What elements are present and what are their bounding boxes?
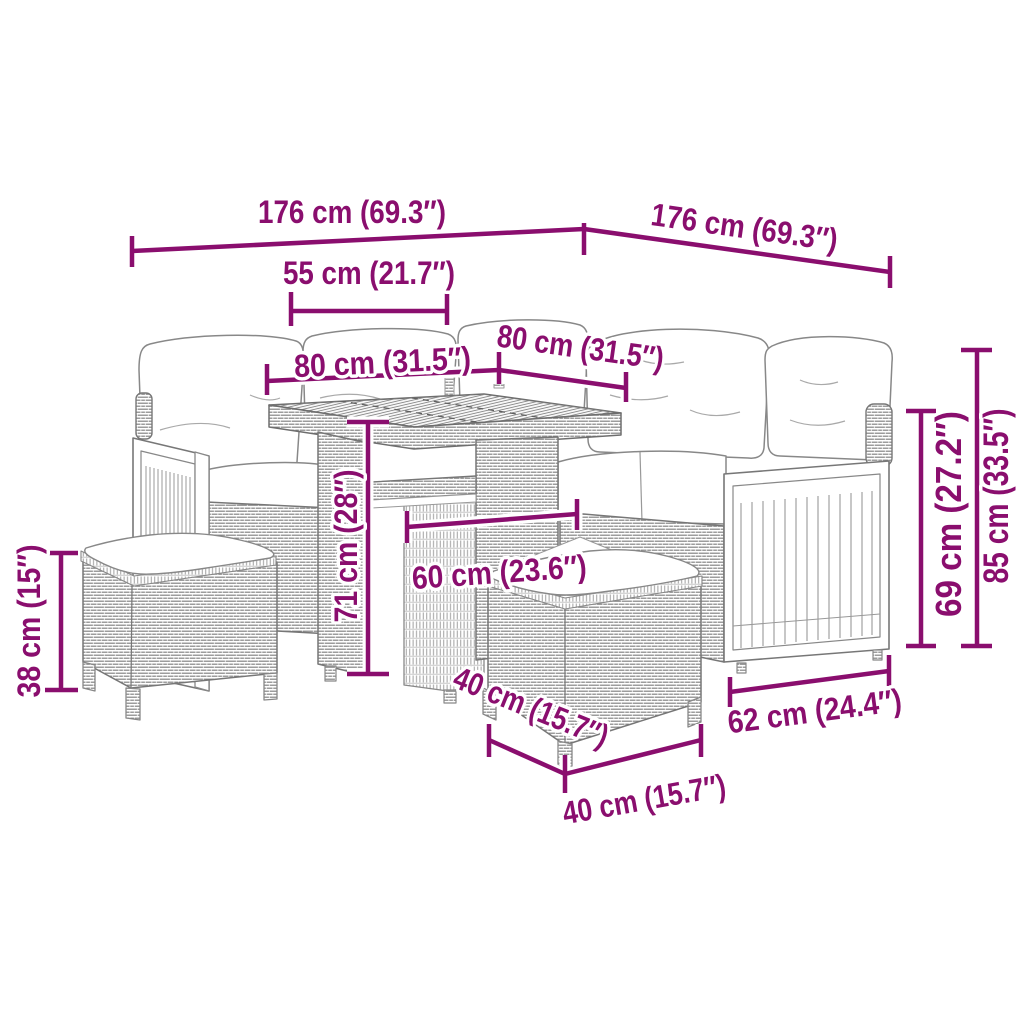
svg-text:176 cm (69.3″): 176 cm (69.3″) bbox=[258, 194, 446, 230]
svg-text:71 cm (28″): 71 cm (28″) bbox=[328, 470, 364, 623]
svg-text:55 cm (21.7″): 55 cm (21.7″) bbox=[283, 255, 455, 291]
svg-text:40 cm (15.7″): 40 cm (15.7″) bbox=[560, 767, 729, 831]
svg-text:85 cm (33.5″): 85 cm (33.5″) bbox=[977, 409, 1016, 584]
svg-text:38 cm (15″): 38 cm (15″) bbox=[11, 545, 47, 698]
svg-text:69 cm (27.2″): 69 cm (27.2″) bbox=[928, 411, 969, 617]
